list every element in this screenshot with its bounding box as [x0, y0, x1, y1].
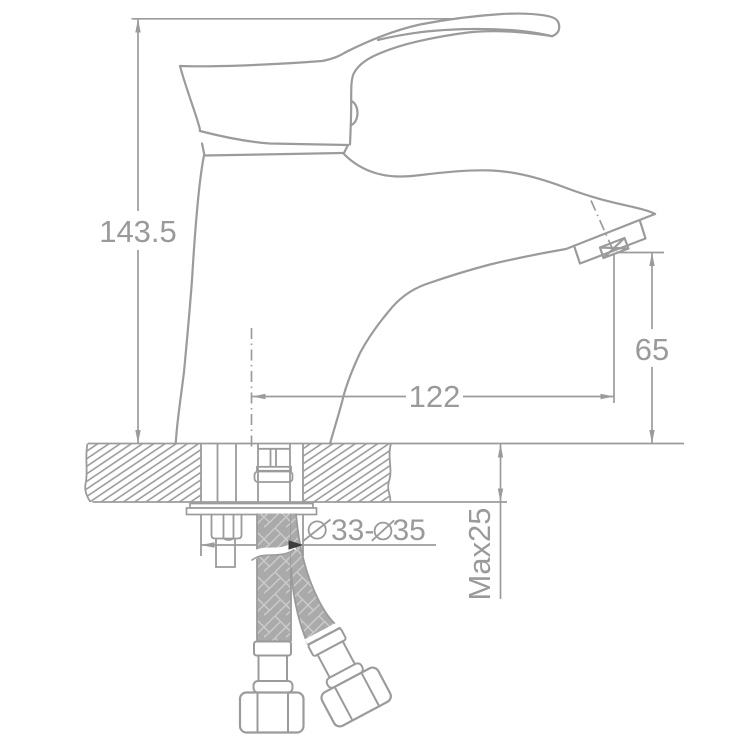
svg-text:33-: 33-	[331, 514, 374, 547]
svg-text:122: 122	[409, 379, 461, 414]
svg-text:65: 65	[635, 332, 669, 367]
svg-text:Max25: Max25	[462, 507, 497, 600]
svg-text:35: 35	[393, 514, 426, 547]
svg-text:143.5: 143.5	[99, 214, 177, 249]
